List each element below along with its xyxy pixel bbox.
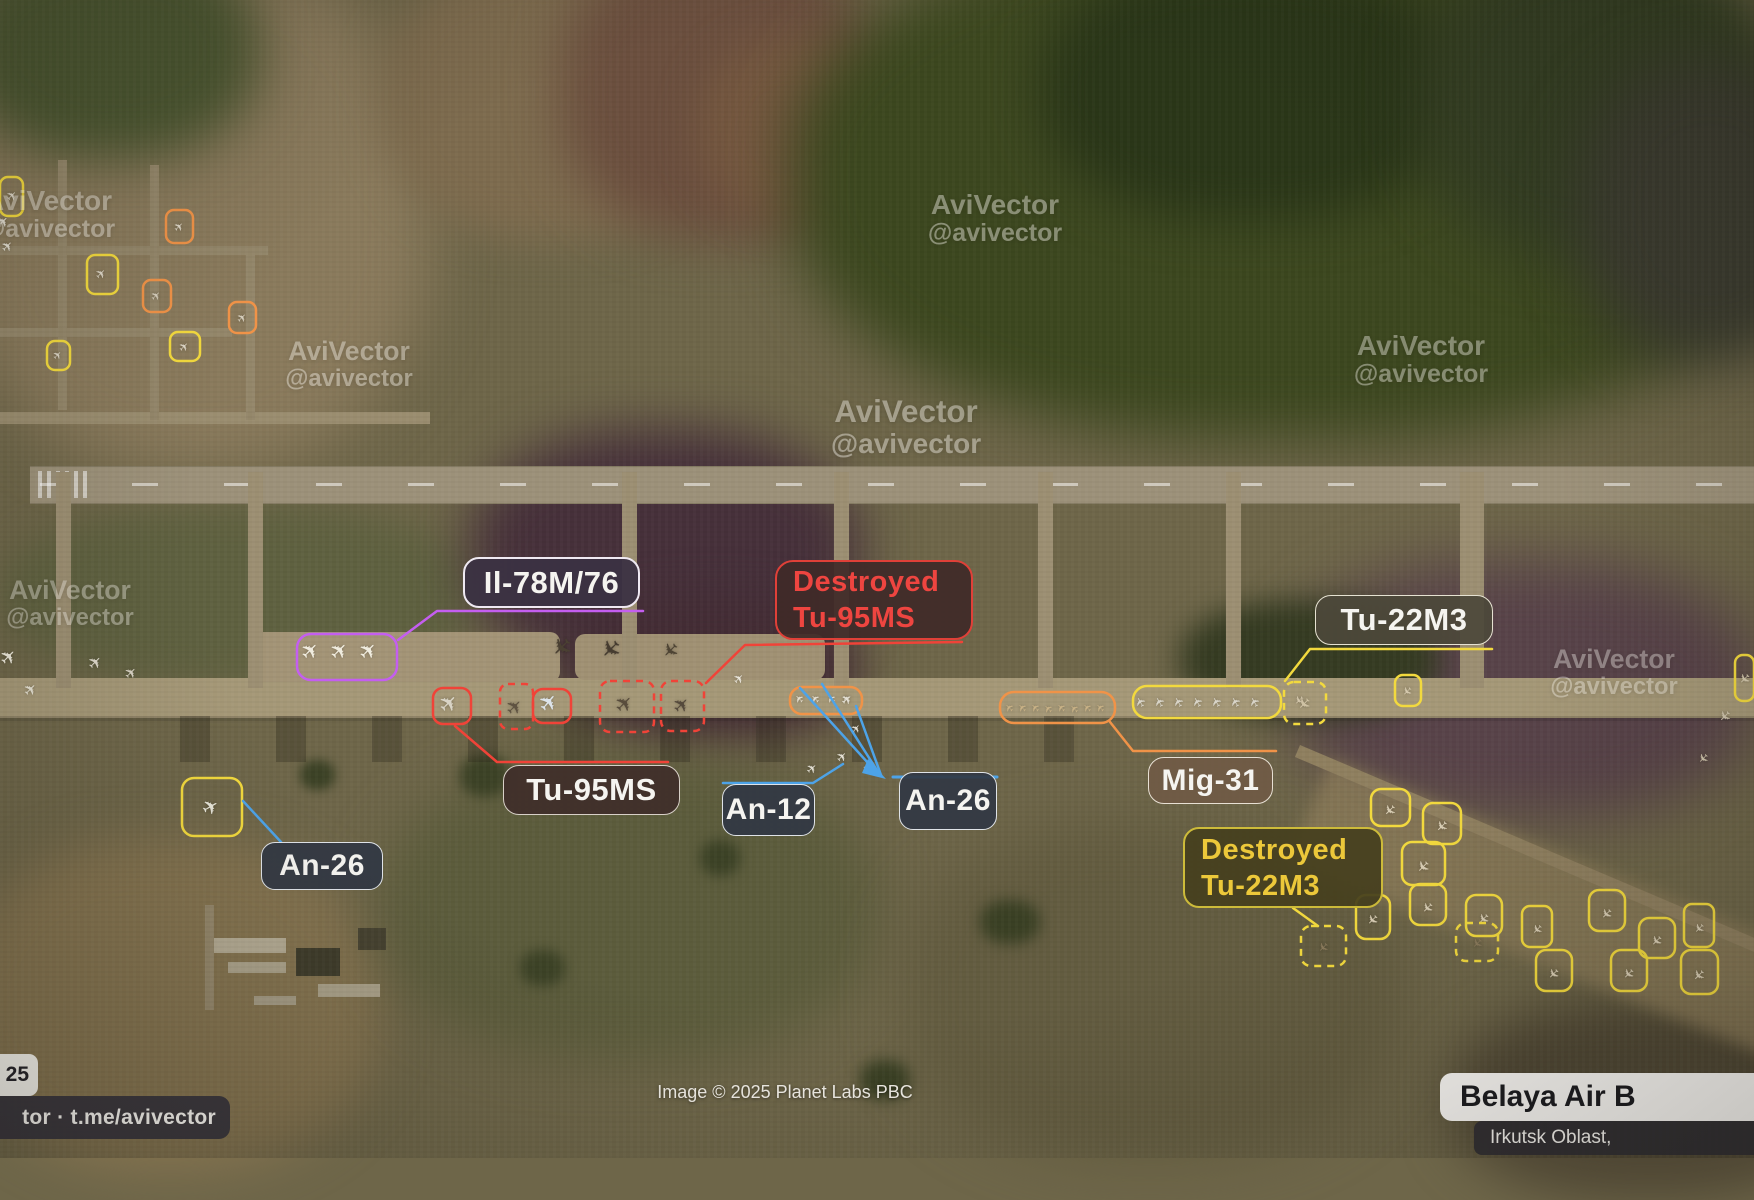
watermark-line1: AviVector [0, 186, 158, 216]
avivector-watermark: AviVector@avivector [885, 190, 1105, 247]
callout-destroyed-tu-95ms: Destroyed Tu-95MS [775, 560, 973, 640]
channel-text: tor · t.me/avivector [22, 1106, 216, 1130]
callout-destroyed-tu-22m3-line2: Tu-22M3 [1201, 868, 1320, 904]
callout-il-78m-76-label: Il-78M/76 [484, 565, 619, 601]
watermark-line2: @avivector [239, 366, 459, 392]
watermark-line1: AviVector [239, 337, 459, 366]
watermark-line2: @avivector [885, 220, 1105, 247]
callout-an-12-label: An-12 [726, 793, 812, 827]
annotated-satellite-image: { "callouts": { "il78": {"text": "Il-78M… [0, 0, 1754, 1158]
watermark-line1: AviVector [1504, 645, 1724, 674]
callout-an-26-left: An-26 [261, 842, 383, 890]
callout-destroyed-tu-22m3: Destroyed Tu-22M3 [1183, 827, 1383, 908]
attribution-text: Image © 2025 Planet Labs PBC [657, 1082, 912, 1102]
watermark-line2: @avivector [0, 216, 158, 243]
callout-destroyed-tu-95ms-line2: Tu-95MS [793, 600, 915, 636]
base-region: Irkutsk Oblast, [1490, 1127, 1611, 1149]
avivector-watermark: AviVector@avivector [796, 395, 1016, 459]
base-region-box: Irkutsk Oblast, [1474, 1121, 1754, 1155]
avivector-watermark: AviVector@avivector [1504, 645, 1724, 699]
callout-an-26-mid: An-26 [899, 772, 997, 830]
watermark-line2: @avivector [0, 605, 180, 631]
callout-destroyed-tu-22m3-line1: Destroyed [1201, 832, 1347, 868]
watermark-line1: AviVector [1311, 331, 1531, 361]
callout-destroyed-tu-95ms-line1: Destroyed [793, 564, 939, 600]
watermark-line2: @avivector [796, 429, 1016, 459]
callout-an-26-mid-label: An-26 [905, 784, 991, 818]
watermark-line1: AviVector [885, 190, 1105, 220]
watermark-line2: @avivector [1311, 361, 1531, 388]
avivector-watermark: AviVector@avivector [0, 186, 158, 243]
callout-il-78m-76: Il-78M/76 [463, 557, 640, 608]
callout-tu-22m3: Tu-22M3 [1315, 595, 1493, 645]
callout-mig-31-label: Mig-31 [1161, 764, 1259, 798]
base-name: Belaya Air B [1460, 1080, 1636, 1114]
callout-tu-22m3-label: Tu-22M3 [1341, 602, 1468, 638]
watermark-line1: AviVector [796, 395, 1016, 429]
avivector-watermark: AviVector@avivector [1311, 331, 1531, 388]
base-name-box: Belaya Air B [1440, 1073, 1754, 1121]
callout-an-26-left-label: An-26 [279, 849, 365, 883]
attribution: Image © 2025 Planet Labs PBC [0, 1082, 1570, 1103]
watermark-line2: @avivector [1504, 674, 1724, 700]
avivector-watermark: AviVector@avivector [0, 576, 180, 630]
callout-tu-95ms-label: Tu-95MS [526, 772, 656, 808]
callout-mig-31: Mig-31 [1148, 757, 1273, 804]
callout-an-12: An-12 [722, 784, 815, 836]
callout-tu-95ms: Tu-95MS [503, 765, 680, 815]
watermark-line1: AviVector [0, 576, 180, 605]
avivector-watermark: AviVector@avivector [239, 337, 459, 391]
